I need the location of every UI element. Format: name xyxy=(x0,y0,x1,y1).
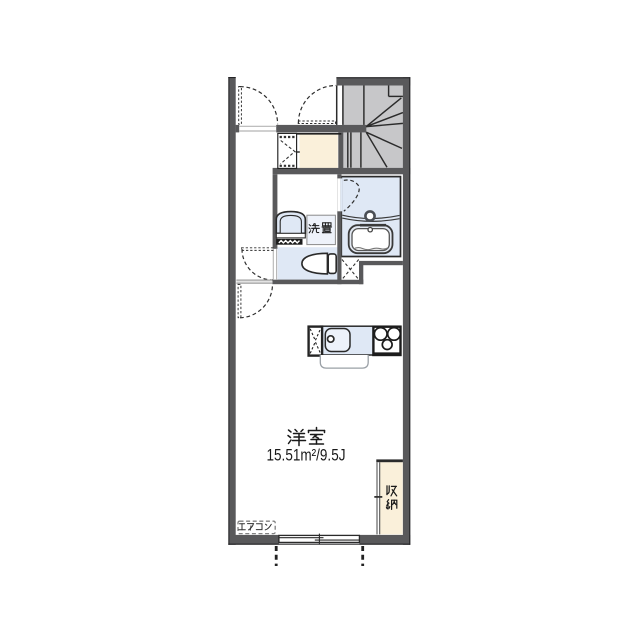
svg-text:15.51m²/9.5J: 15.51m²/9.5J xyxy=(267,446,346,465)
